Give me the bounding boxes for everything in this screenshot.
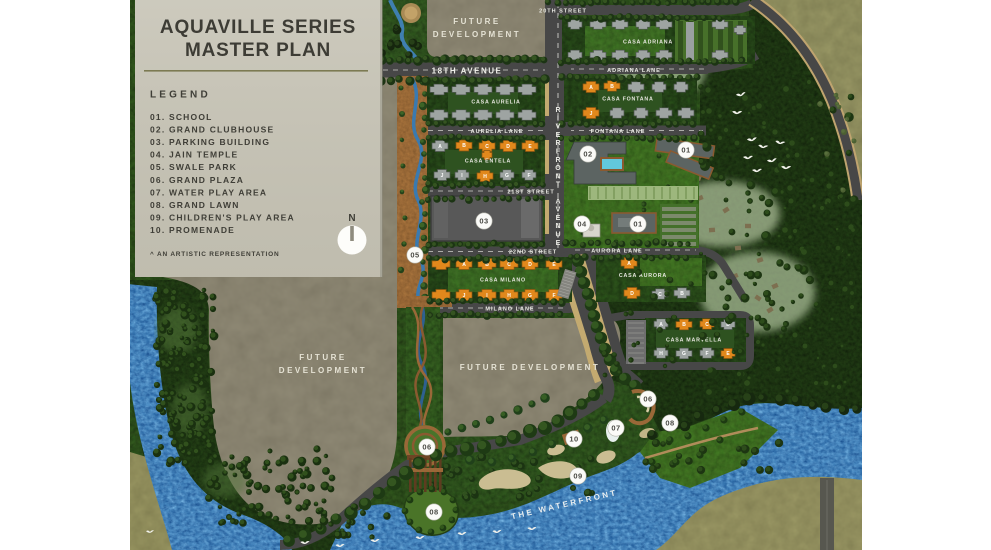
svg-text:A: A [627, 261, 631, 267]
svg-text:CASA ENTELA: CASA ENTELA [465, 159, 511, 165]
svg-text:02. GRAND CLUBHOUSE: 02. GRAND CLUBHOUSE [150, 124, 274, 134]
svg-text:03. PARKING BUILDING: 03. PARKING BUILDING [150, 137, 270, 147]
svg-text:B: B [680, 291, 684, 297]
svg-text:I: I [557, 115, 559, 122]
svg-text:10. PROMENADE: 10. PROMENADE [150, 225, 235, 235]
svg-text:O: O [555, 165, 561, 172]
svg-text:N: N [555, 173, 560, 180]
svg-text:E: E [556, 215, 561, 222]
svg-text:F: F [552, 293, 555, 299]
svg-text:18TH AVENUE: 18TH AVENUE [432, 67, 503, 76]
svg-text:J: J [441, 173, 444, 179]
svg-text:ADRIANA LANE: ADRIANA LANE [607, 68, 661, 74]
svg-text:MILANO LANE: MILANO LANE [485, 307, 534, 313]
svg-text:CASA ADRIANA: CASA ADRIANA [623, 40, 673, 46]
svg-text:D: D [528, 262, 532, 268]
svg-text:MASTER PLAN: MASTER PLAN [185, 40, 331, 61]
svg-text:09. CHILDREN'S PLAY AREA: 09. CHILDREN'S PLAY AREA [150, 213, 295, 223]
svg-text:G: G [682, 351, 686, 357]
svg-text:E: E [556, 240, 561, 247]
svg-text:08. GRAND LAWN: 08. GRAND LAWN [150, 200, 240, 210]
svg-text:01. SCHOOL: 01. SCHOOL [150, 112, 213, 122]
svg-text:D: D [506, 144, 510, 150]
svg-text:N: N [348, 213, 355, 224]
svg-text:J: J [590, 111, 593, 117]
svg-text:F: F [705, 351, 708, 357]
svg-text:05: 05 [410, 250, 419, 259]
svg-text:08: 08 [665, 418, 674, 427]
svg-text:A: A [462, 262, 466, 268]
svg-text:01: 01 [681, 145, 690, 154]
svg-text:R: R [555, 107, 560, 114]
svg-text:N: N [555, 223, 560, 230]
svg-text:G: G [505, 173, 509, 179]
svg-text:R: R [555, 140, 560, 147]
svg-text:C: C [705, 322, 709, 328]
svg-text:21ST STREET: 21ST STREET [507, 190, 554, 196]
svg-text:22ND STREET: 22ND STREET [509, 250, 557, 256]
svg-text:CASA MARVELLA: CASA MARVELLA [666, 338, 722, 344]
svg-text:07: 07 [611, 423, 620, 432]
svg-text:01: 01 [633, 219, 642, 228]
svg-text:05. SWALE PARK: 05. SWALE PARK [150, 162, 237, 172]
svg-text:FUTURE: FUTURE [299, 353, 346, 362]
svg-text:FUTURE DEVELOPMENT: FUTURE DEVELOPMENT [460, 363, 601, 372]
svg-text:D: D [630, 291, 634, 297]
svg-text:C: C [658, 292, 662, 298]
svg-text:06. GRAND PLAZA: 06. GRAND PLAZA [150, 175, 244, 185]
svg-text:CASA AURELIA: CASA AURELIA [471, 100, 520, 106]
svg-text:H: H [507, 293, 511, 299]
svg-text:F: F [527, 173, 530, 179]
svg-text:U: U [555, 232, 560, 239]
svg-text:E: E [556, 132, 561, 139]
svg-text:CASA MILANO: CASA MILANO [480, 278, 526, 284]
svg-text:AQUAVILLE SERIES: AQUAVILLE SERIES [160, 17, 356, 38]
svg-text:V: V [556, 124, 561, 131]
svg-text:C: C [485, 144, 489, 150]
svg-text:04. JAIN TEMPLE: 04. JAIN TEMPLE [150, 150, 238, 160]
svg-text:10: 10 [569, 434, 578, 443]
svg-text:DEVELOPMENT: DEVELOPMENT [433, 30, 521, 39]
svg-text:B: B [610, 84, 614, 90]
svg-text:FUTURE: FUTURE [453, 17, 500, 26]
svg-text:^ AN ARTISTIC REPRESENTATION: ^ AN ARTISTIC REPRESENTATION [150, 250, 279, 258]
svg-text:V: V [556, 207, 561, 214]
svg-text:AURORA LANE: AURORA LANE [591, 249, 642, 255]
svg-text:T: T [556, 182, 561, 189]
svg-text:FONTANA LANE: FONTANA LANE [591, 129, 646, 135]
svg-text:CASA FONTANA: CASA FONTANA [602, 97, 653, 103]
svg-text:H: H [483, 174, 487, 180]
svg-text:09: 09 [573, 471, 582, 480]
svg-text:02: 02 [583, 149, 592, 158]
svg-text:B: B [682, 322, 686, 328]
svg-text:A: A [589, 85, 593, 91]
svg-text:A: A [555, 198, 560, 205]
svg-text:A: A [438, 144, 442, 150]
svg-text:CASA AURORA: CASA AURORA [619, 273, 667, 279]
svg-text:03: 03 [479, 216, 488, 225]
svg-text:DEVELOPMENT: DEVELOPMENT [279, 366, 367, 375]
svg-text:R: R [555, 157, 560, 164]
svg-text:20TH STREET: 20TH STREET [539, 9, 587, 15]
svg-text:C: C [507, 262, 511, 268]
svg-text:F: F [556, 149, 561, 156]
svg-text:B: B [462, 143, 466, 149]
svg-text:07. WATER PLAY AREA: 07. WATER PLAY AREA [150, 187, 267, 197]
svg-text:08: 08 [429, 507, 438, 516]
svg-text:LEGEND: LEGEND [150, 90, 211, 101]
svg-text:06: 06 [422, 442, 431, 451]
svg-text:AURELIA LANE: AURELIA LANE [471, 129, 524, 135]
svg-text:06: 06 [643, 394, 652, 403]
svg-text:04: 04 [577, 219, 587, 228]
svg-text:H: H [659, 351, 663, 357]
